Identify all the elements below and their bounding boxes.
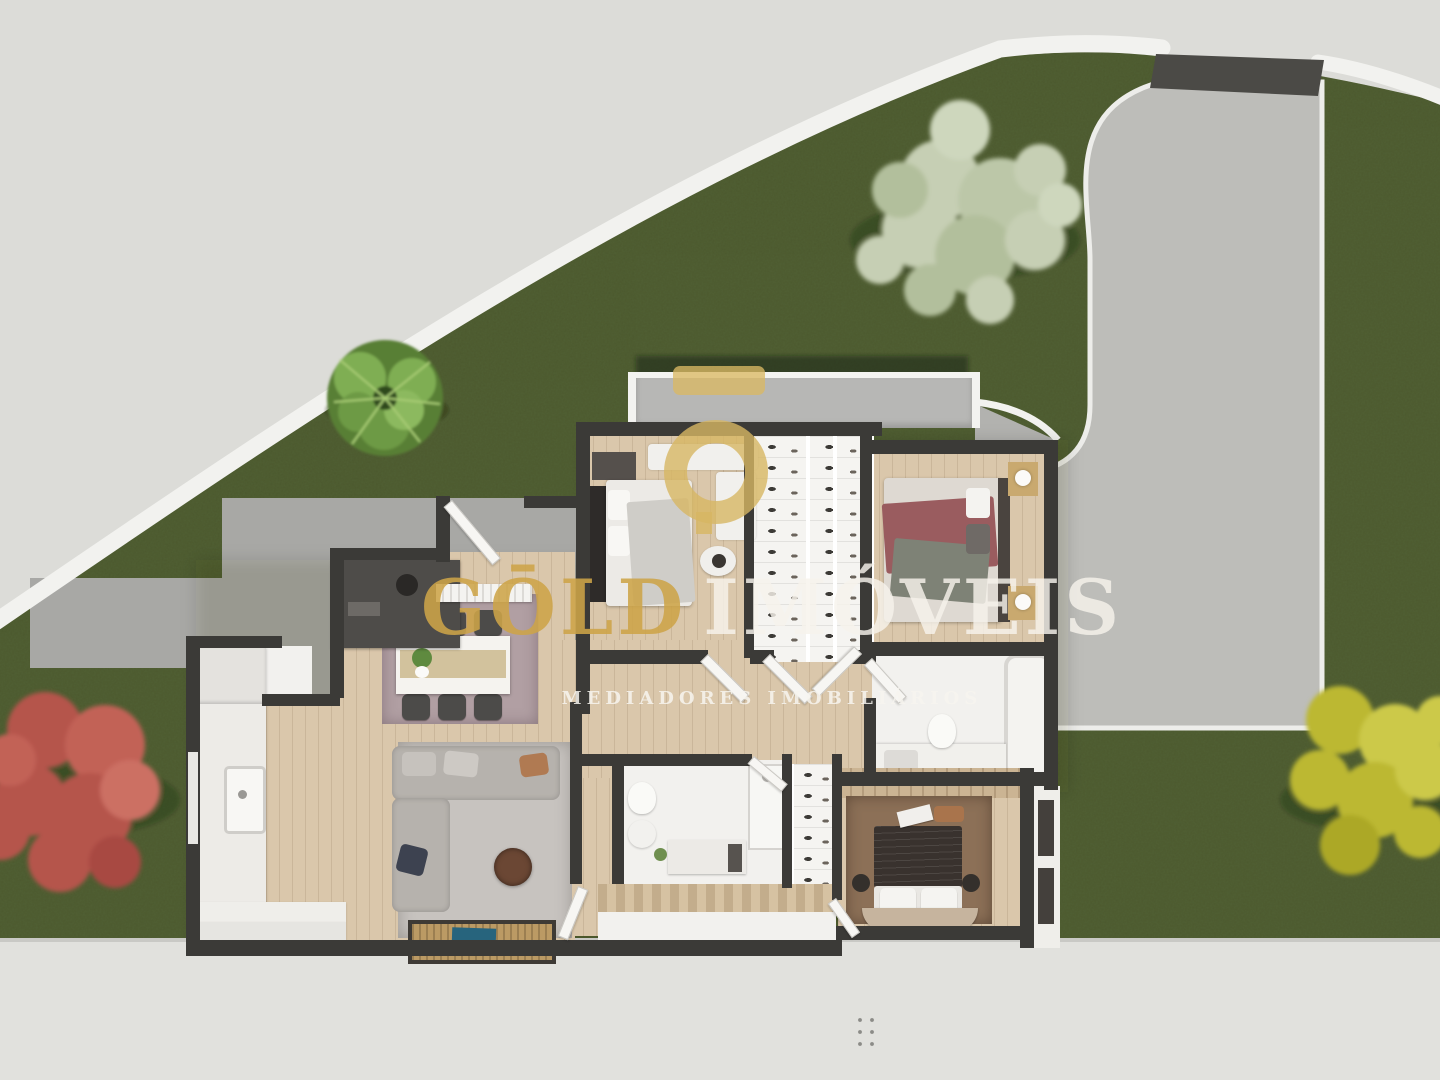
- kitchen-window: [188, 752, 198, 844]
- toilet: [628, 782, 656, 814]
- coffee-table: [494, 848, 532, 886]
- wall: [570, 702, 582, 884]
- wall: [864, 698, 876, 778]
- closet-divider: [833, 436, 837, 662]
- cushion: [402, 752, 436, 776]
- cushion-terracotta: [519, 752, 550, 778]
- wardrobe-closet-left: [750, 436, 814, 662]
- lamp: [1015, 470, 1031, 486]
- wall: [860, 436, 872, 662]
- pillow: [608, 526, 630, 556]
- plant-pot: [415, 666, 429, 678]
- wall: [330, 548, 436, 560]
- pillow: [966, 524, 990, 554]
- speaker: [852, 874, 870, 892]
- stair-hall-floor: [598, 912, 836, 940]
- wall: [262, 694, 340, 706]
- window-frame: [1038, 868, 1054, 924]
- table-plant: [412, 648, 432, 668]
- stairs: [598, 884, 836, 912]
- mirror: [728, 844, 742, 872]
- dark-duvet: [874, 826, 962, 888]
- bed-headboard: [590, 486, 606, 602]
- wall: [612, 760, 624, 884]
- wall: [1020, 768, 1034, 948]
- fridge: [196, 648, 266, 704]
- bidet: [628, 820, 656, 848]
- wall: [860, 642, 1056, 656]
- speaker: [962, 874, 980, 892]
- plant: [654, 848, 667, 861]
- wall: [836, 926, 1034, 940]
- wall: [1044, 440, 1058, 790]
- dining-chair: [474, 610, 502, 636]
- dining-chair: [438, 694, 466, 720]
- slat-bench: [436, 584, 532, 602]
- wall: [186, 940, 842, 956]
- house: [0, 0, 1440, 1080]
- wall: [524, 496, 578, 508]
- step-lower: [198, 922, 346, 940]
- lamp: [1015, 594, 1031, 610]
- floor-plan-scene: GŌLDIMÓVEIS MEDIADORES IMOBILIÁRIOS: [0, 0, 1440, 1080]
- wall: [576, 422, 882, 436]
- bed-blanket: [626, 498, 695, 606]
- clutch: [934, 806, 964, 822]
- pillow: [966, 488, 990, 518]
- counter-tray: [348, 602, 380, 616]
- kitchen-sink: [224, 766, 266, 834]
- faucet: [238, 790, 247, 799]
- wall: [582, 754, 752, 766]
- wall: [576, 650, 708, 664]
- cushion: [443, 750, 479, 777]
- wall: [782, 754, 792, 888]
- wall: [330, 548, 344, 698]
- bench: [648, 444, 758, 470]
- toilet: [928, 714, 956, 748]
- utility-dots-icon: [854, 1014, 878, 1052]
- step-upper: [198, 902, 346, 922]
- wall: [576, 422, 590, 714]
- wall: [860, 440, 1056, 454]
- pouf-tray: [712, 554, 726, 568]
- dining-chair: [474, 694, 502, 720]
- window-frame: [1038, 800, 1054, 856]
- nightstand: [592, 452, 636, 480]
- dining-chair: [402, 694, 430, 720]
- wall: [186, 636, 282, 648]
- balcony-floor: [628, 372, 980, 428]
- wall: [744, 436, 754, 658]
- cooktop-pot: [396, 574, 418, 596]
- wall: [832, 754, 842, 900]
